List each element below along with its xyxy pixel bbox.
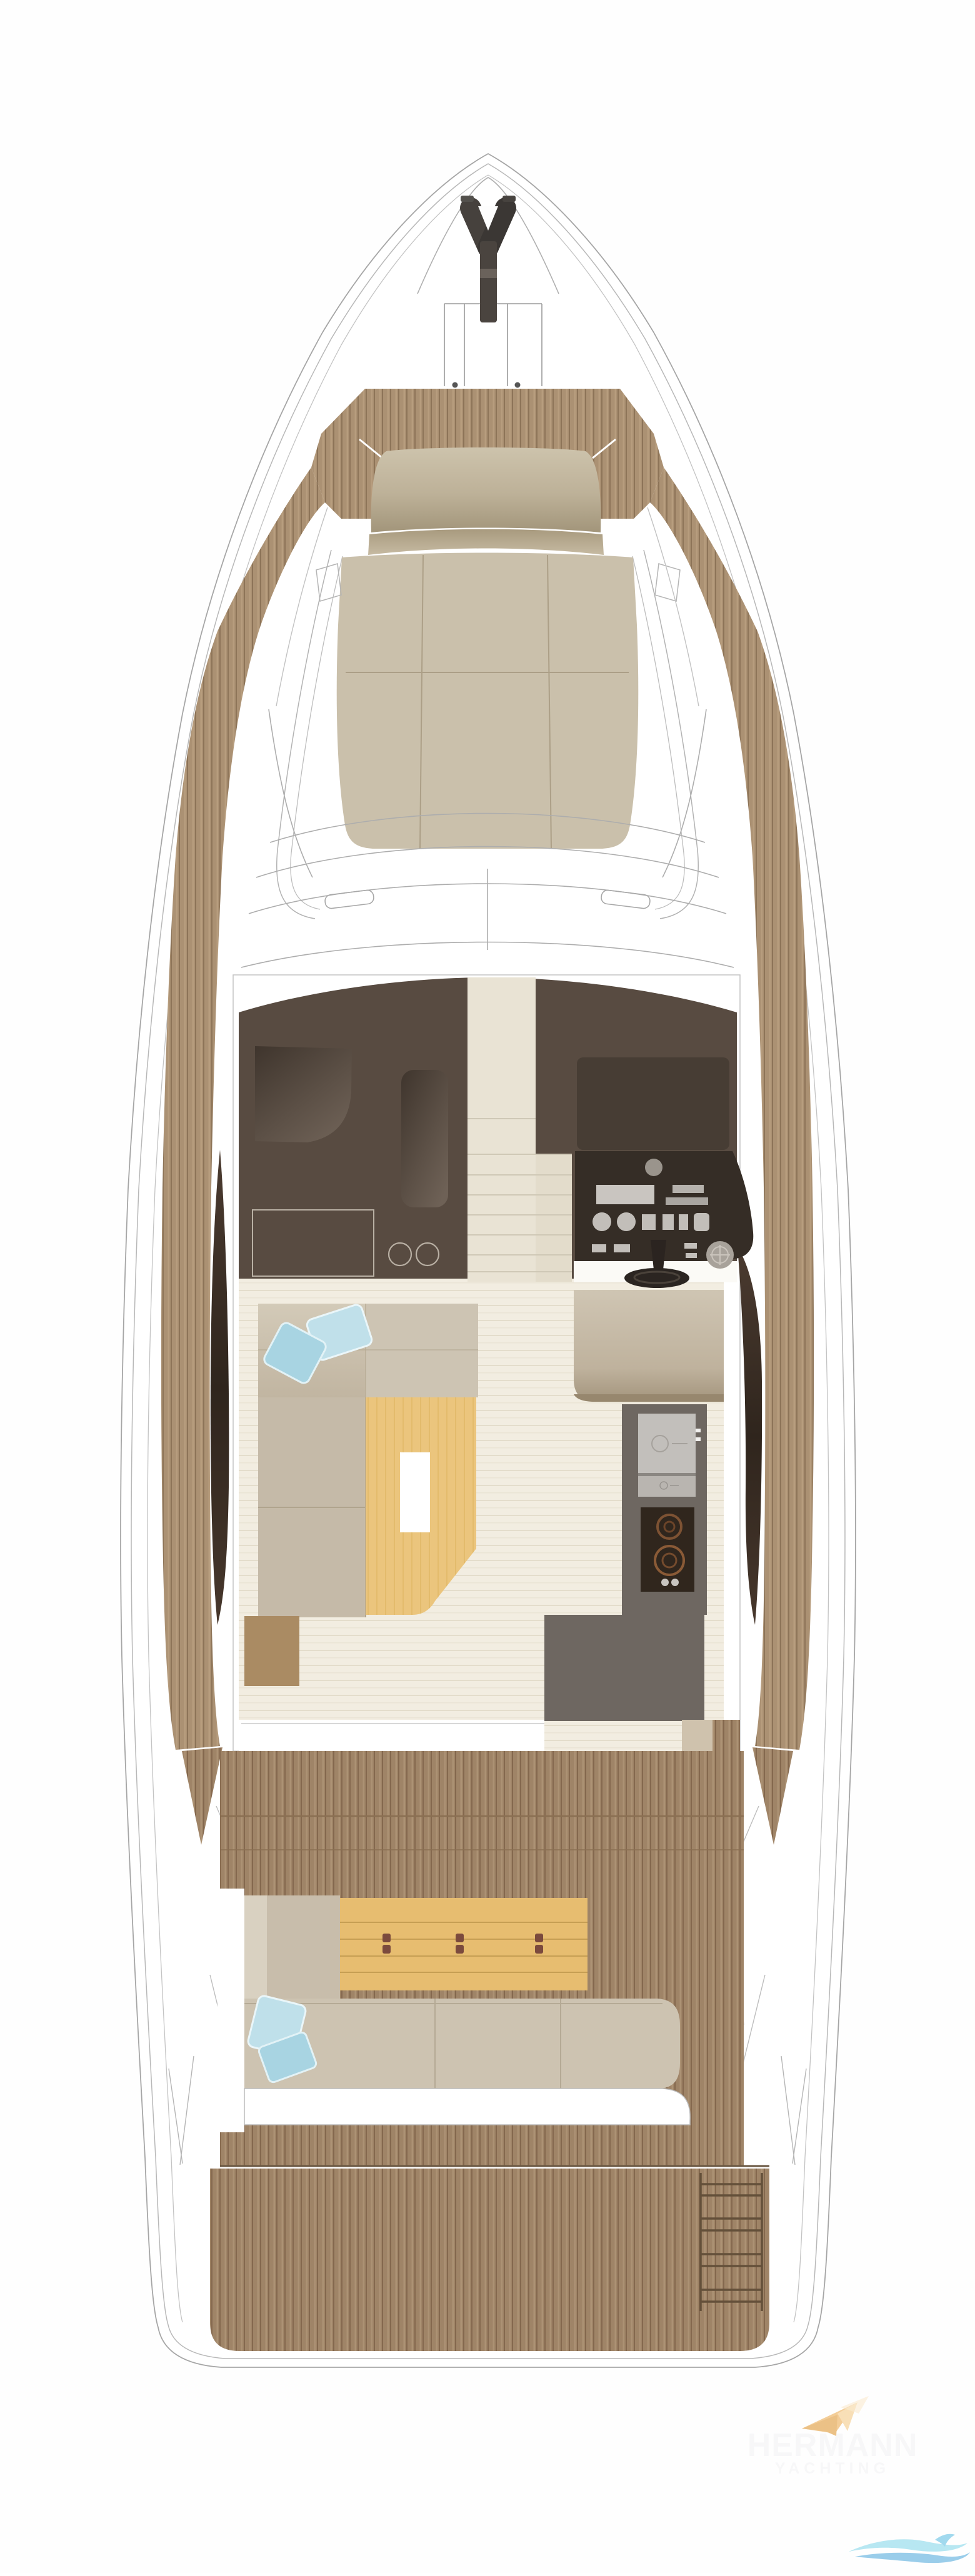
svg-text:HERMANN: HERMANN (747, 2427, 918, 2464)
svg-text:YACHTING: YACHTING (775, 2460, 890, 2477)
